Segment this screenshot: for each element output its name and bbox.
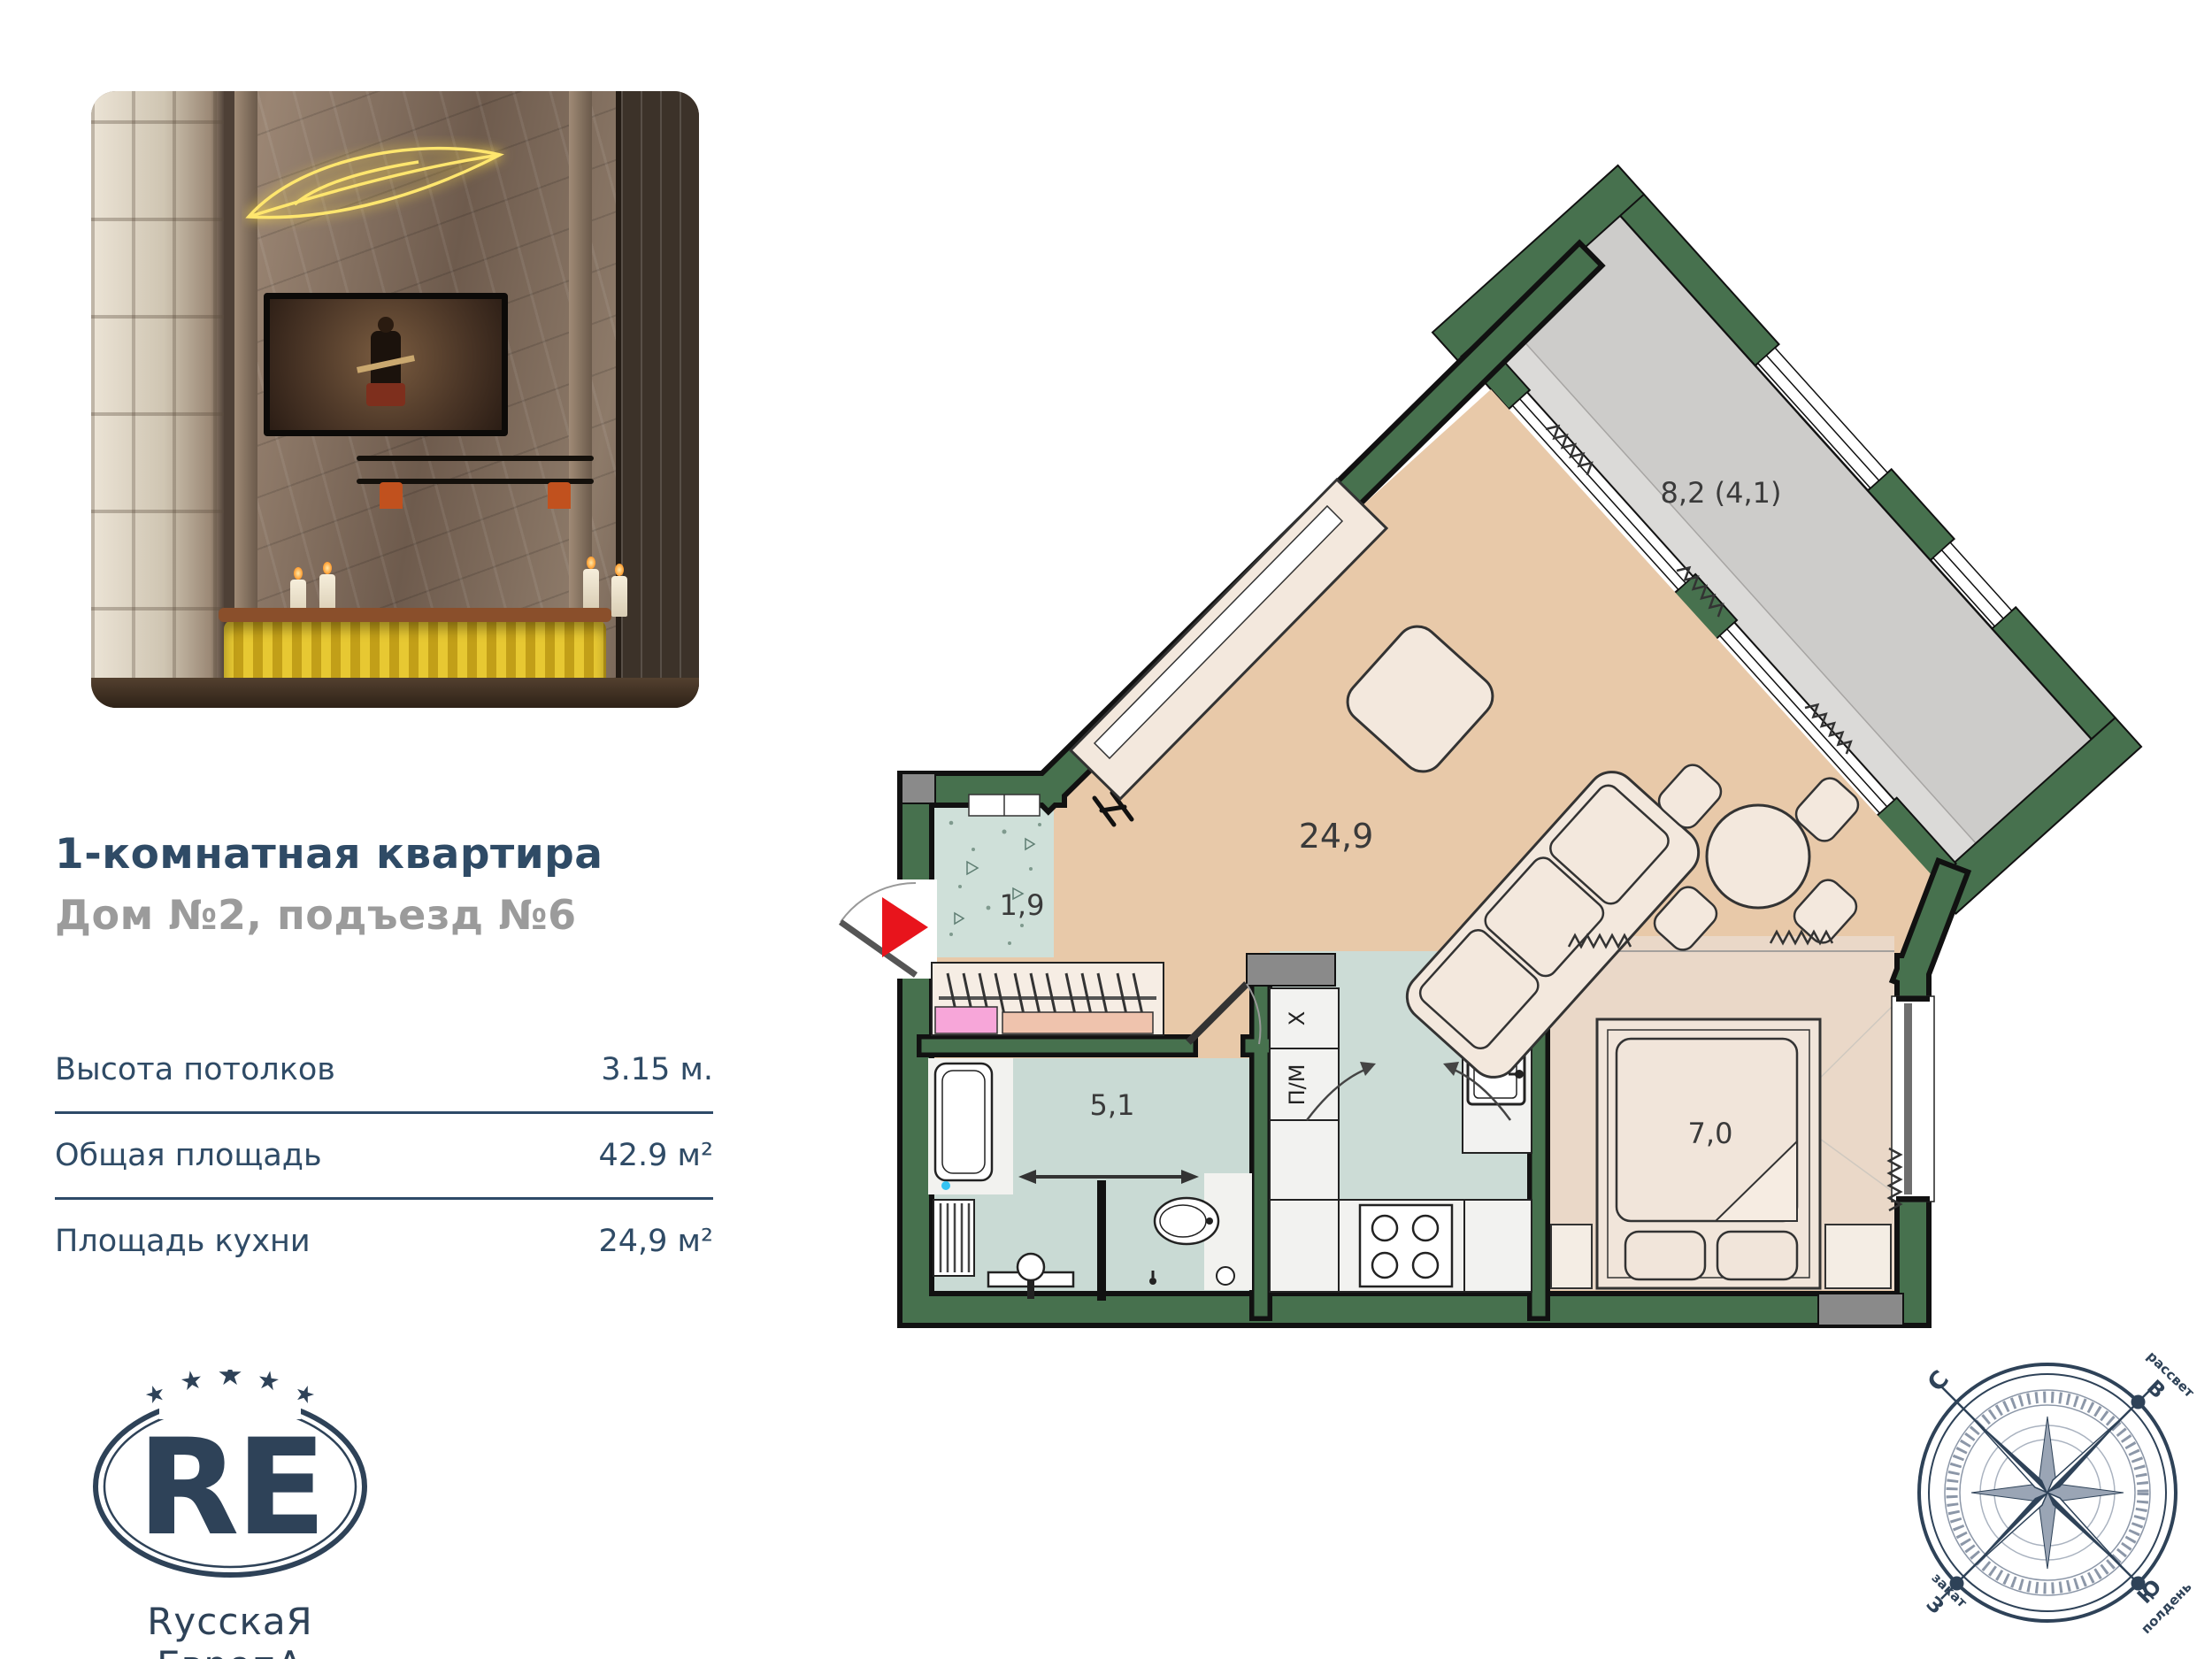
- floor-plan: Х П/М: [836, 124, 2146, 1407]
- brochure-page: 1-комнатная квартира Дом №2, подъезд №6 …: [0, 0, 2212, 1659]
- spec-label: Общая площадь: [55, 1138, 322, 1173]
- hall-cabinet: [969, 795, 1040, 816]
- neon-leaf-lamp: [242, 135, 516, 242]
- interior-photo: [91, 91, 699, 708]
- spec-label: Высота потолков: [55, 1052, 335, 1087]
- warrior-skirt: [366, 383, 405, 406]
- logo-emblem: ★ ★ ★ ★ ★ RE: [71, 1370, 389, 1591]
- tv-screen: [264, 293, 508, 436]
- storage-shelf: [1002, 1012, 1153, 1033]
- logo-star: ★: [255, 1370, 282, 1397]
- compass-rose: С рассвет В закат З Ю полдень: [1904, 1332, 2205, 1650]
- katana-display: [357, 452, 594, 498]
- spec-value: 24,9 м²: [599, 1224, 714, 1259]
- logo-monogram: RE: [137, 1411, 323, 1565]
- candle: [611, 576, 627, 617]
- title-block: 1-комнатная квартира Дом №2, подъезд №6: [55, 830, 727, 939]
- hall-floor: [928, 793, 1054, 957]
- compass-north: С: [1923, 1365, 1955, 1397]
- candle: [583, 569, 599, 610]
- tv-picture: [270, 299, 502, 430]
- toilet: [1155, 1198, 1218, 1244]
- dining-table: [1707, 805, 1809, 908]
- specs-table: Высота потолков 3.15 м. Общая площадь 42…: [55, 1028, 713, 1283]
- spec-value: 3.15 м.: [601, 1052, 713, 1087]
- glass-partition: [616, 91, 699, 708]
- spec-row-total-area: Общая площадь 42.9 м²: [55, 1111, 713, 1197]
- logo-star: ★: [217, 1370, 243, 1392]
- area-label-balcony: 8,2 (4,1): [1661, 476, 1782, 510]
- brand-logo: ★ ★ ★ ★ ★ RE RусскаЯ ЕвропА Калининград: [71, 1370, 389, 1659]
- nightstand: [1825, 1225, 1891, 1288]
- spec-row-kitchen-area: Площадь кухни 24,9 м²: [55, 1197, 713, 1283]
- stove: [1360, 1205, 1452, 1286]
- towel-radiator: [933, 1200, 974, 1276]
- bathtub: [935, 1064, 992, 1180]
- area-label-bedroom: 7,0: [1688, 1117, 1733, 1150]
- area-label-hall: 1,9: [1000, 888, 1045, 922]
- window: [91, 91, 234, 708]
- logo-star: ★: [178, 1370, 205, 1397]
- wardrobe: [932, 963, 1164, 1035]
- nightstand: [1551, 1225, 1592, 1288]
- pillow: [1625, 1232, 1705, 1279]
- page-subtitle: Дом №2, подъезд №6: [55, 891, 727, 939]
- floor-drain: [1217, 1267, 1234, 1285]
- brand-name: RусскаЯ ЕвропА: [71, 1600, 389, 1659]
- bed: [1597, 1019, 1820, 1288]
- spec-row-ceiling: Высота потолков 3.15 м.: [55, 1028, 713, 1111]
- dishwasher-label: П/М: [1285, 1064, 1310, 1106]
- storage-box-pink: [935, 1007, 997, 1033]
- floor: [91, 678, 699, 708]
- compass-star: [1969, 1414, 2126, 1571]
- pillow: [1717, 1232, 1797, 1279]
- page-title: 1-комнатная квартира: [55, 830, 727, 879]
- spec-value: 42.9 м²: [599, 1138, 714, 1173]
- area-label-living: 24,9: [1299, 817, 1374, 856]
- bedroom-window: [1892, 996, 1934, 1202]
- area-label-bath: 5,1: [1090, 1088, 1135, 1122]
- fridge-label: Х: [1285, 1011, 1310, 1025]
- spec-label: Площадь кухни: [55, 1224, 311, 1259]
